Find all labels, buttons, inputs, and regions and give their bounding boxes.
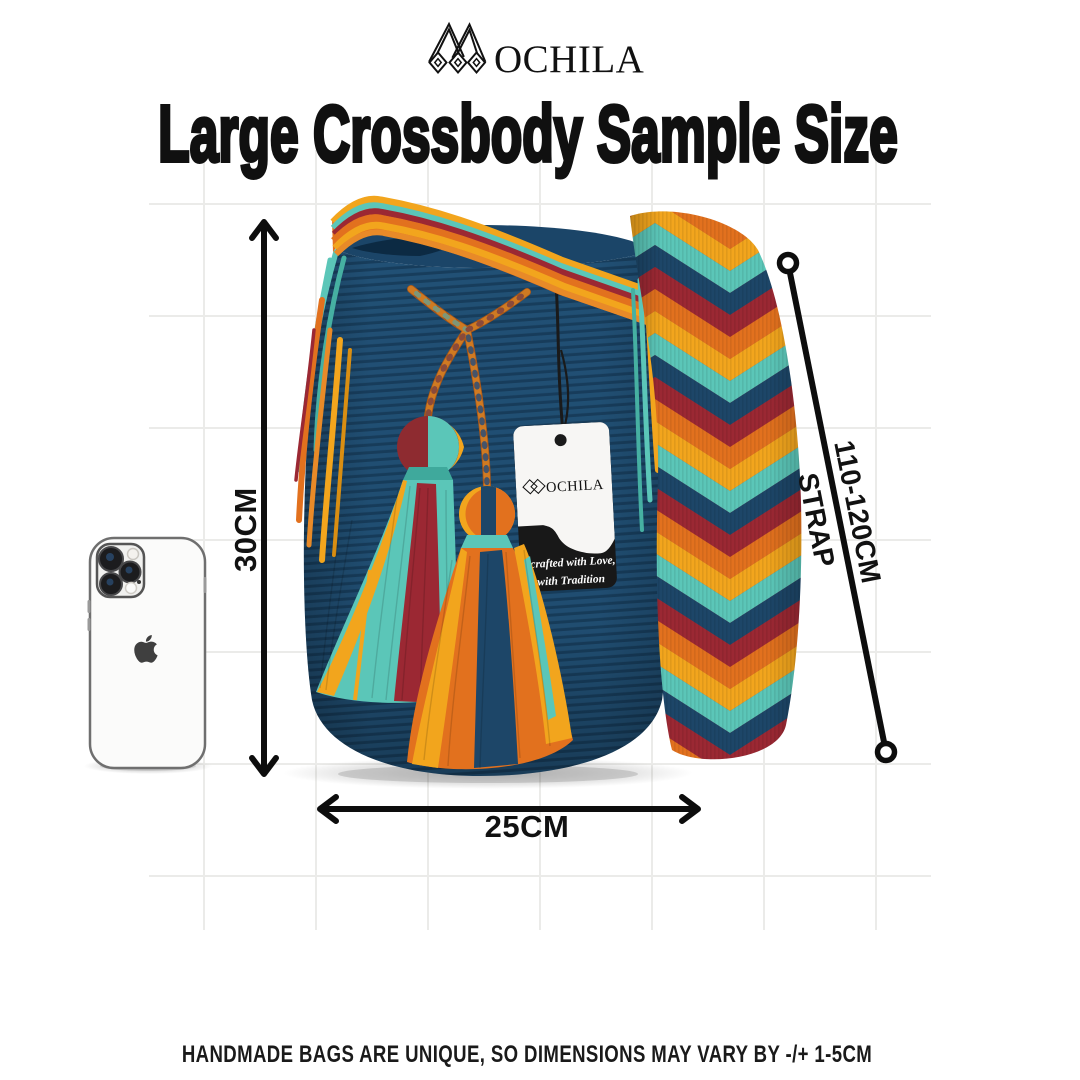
svg-text:30CM: 30CM: [228, 487, 263, 572]
svg-text:OCHILA: OCHILA: [494, 38, 644, 81]
svg-text:25CM: 25CM: [485, 809, 570, 844]
svg-text:HANDMADE BAGS ARE UNIQUE, SO D: HANDMADE BAGS ARE UNIQUE, SO DIMENSIONS …: [182, 1041, 872, 1068]
svg-text:Large Crossbody Sample Size: Large Crossbody Sample Size: [158, 90, 898, 179]
svg-text:OCHILA: OCHILA: [546, 477, 605, 496]
